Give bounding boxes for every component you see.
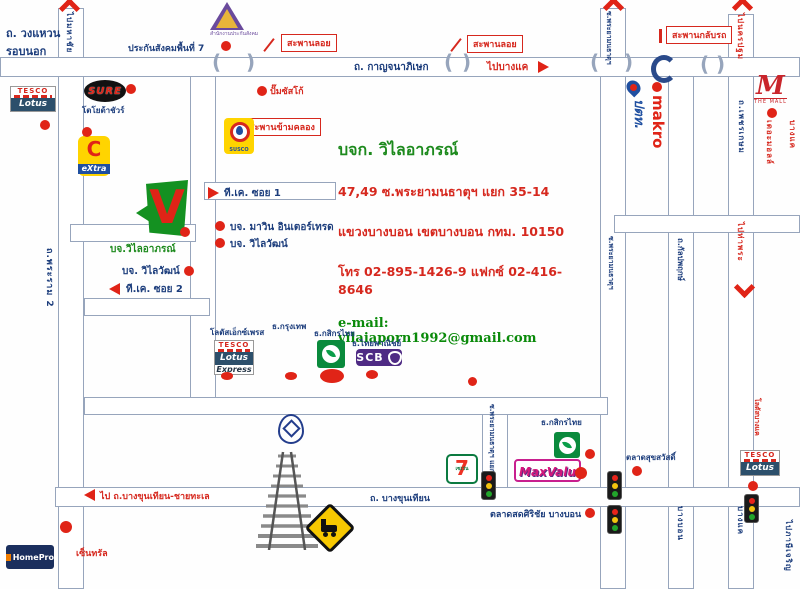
- bangkok-bank-logo: [278, 414, 304, 444]
- the-mall-logo: M THE MALL: [754, 74, 787, 105]
- label-central: เซ็นทรัล: [76, 546, 108, 560]
- label-vilaiwat-left: บจ. วิไลวัฒน์: [122, 264, 180, 279]
- label-bangkok-bank: ธ.กรุงเทพ: [272, 320, 306, 333]
- the-mall-dot: [767, 108, 777, 118]
- susco-logo: SUSCO: [224, 118, 254, 154]
- makro-dot: [652, 82, 662, 92]
- bridge-mark: ): [246, 50, 255, 74]
- label-sapanloy-2: สะพานลอย: [467, 35, 523, 53]
- label-vilaiwat-right: บจ. วิไลวัฒน์: [230, 237, 288, 252]
- vilaiaporn-location-map: ( ) ( ) ( ) ( ) ถ. วงแหวน รอบนอก ไปมหาชั…: [0, 0, 800, 589]
- label-toyota-sure: โตโยต้าชัวร์: [82, 104, 124, 117]
- bigc-extra-logo: C eXtra: [78, 136, 110, 176]
- label-phraya-monthat-mid: ซ.พระยามนธาตุฯ: [606, 236, 617, 290]
- bridge-slash-icon: [450, 38, 461, 52]
- label-bangkhunthian-road: ถ. บางขุนเทียน: [370, 491, 430, 505]
- label-mawin: บจ. มาวิน อินเตอร์เทรด: [230, 220, 334, 235]
- label-susco-pump: ปั๊มซัสโก้: [270, 84, 304, 98]
- train-icon: [315, 513, 345, 543]
- road-tk-soi2: [84, 298, 210, 316]
- tesco-lotus-bangkhae-logo: TESCO Lotus: [740, 450, 780, 476]
- label-talad-suk: ตลาดสุขสวัสดิ์: [626, 451, 676, 464]
- lotus-bangkhae-dot: [748, 481, 758, 491]
- tesco-lotus-logo: TESCO Lotus: [10, 86, 56, 112]
- talad-suk-dot: [632, 466, 642, 476]
- label-lotus-bangkhae: โลตัสบางแค: [752, 398, 763, 436]
- ptt-flame-icon: [624, 78, 644, 98]
- scb-dot: [366, 370, 378, 379]
- mawin-dot: [215, 221, 225, 231]
- label-lotus-express: โลตัสเอ็กซ์เพรส: [210, 326, 264, 339]
- toyota-sure-logo: SURE: [84, 80, 126, 102]
- central-dot: [60, 521, 72, 533]
- company-phone: โทร 02-895-1426-9 แฟกซ์ 02-416-8646: [338, 262, 588, 297]
- arrow-left-icon: [84, 489, 95, 501]
- label-kanlapaphruek: ถ.กัลปพฤกษ์: [674, 238, 687, 281]
- homepro-mark-icon: [6, 554, 11, 561]
- bridge-mark: ): [462, 50, 471, 74]
- homepro-logo: HomePro: [6, 545, 54, 569]
- vilaiwat-left-dot: [184, 266, 194, 276]
- bridge-mark: ): [624, 50, 633, 74]
- bridge-mark: (: [444, 50, 453, 74]
- tesco-lotus-dot: [40, 120, 50, 130]
- maxvalu-logo: MaxValu: [514, 459, 581, 482]
- company-info-block: บจก. วิไลอาภรณ์ 47,49 ซ.พระยามนธาตุฯ แยก…: [338, 138, 588, 346]
- road-right-mid: [614, 215, 800, 233]
- lotus-express-dot: [221, 372, 233, 380]
- sure-dot: [126, 84, 136, 94]
- road-tk-soi: [190, 76, 216, 415]
- bridge-slash-icon: [263, 38, 274, 52]
- arrow-left-icon: [109, 283, 120, 295]
- label-tk-soi2: ที.เค. ซอย 2: [126, 282, 183, 297]
- sso-pyramid-logo: สำนักงานประกันสังคม: [210, 2, 258, 38]
- bridge-mark: ): [716, 52, 725, 76]
- label-kbank-2: ธ.กสิกรไทย: [541, 416, 582, 429]
- bridge-tick-icon: [659, 29, 662, 43]
- label-corner-lower-right: ไปภาษีเจริญ: [782, 520, 795, 572]
- label-kanchanaphisek: ถ. กาญจนาภิเษก: [354, 60, 429, 75]
- label-sapanloy-1: สะพานลอย: [281, 34, 337, 52]
- company-address-2: แขวงบางบอน เขตบางบอน กทม. 10150: [338, 222, 588, 242]
- susco-dot: [257, 86, 267, 96]
- traffic-light-icon: [607, 471, 622, 500]
- label-the-mall-1: เดอะมอลล์: [763, 120, 776, 165]
- railway-track: [256, 450, 318, 550]
- label-tk-soi1: ที.เค. ซอย 1: [224, 186, 281, 201]
- sirichai-dot: [585, 508, 595, 518]
- label-sapan-klabrot: สะพานกลับรถ: [666, 26, 732, 44]
- ptt-logo: ปตท.: [627, 80, 649, 129]
- bridge-mark: (: [212, 50, 221, 74]
- seven-eleven-dot: [468, 377, 477, 386]
- label-sirichai-market: ตลาดสดศิริชัย บางบอน: [490, 507, 581, 521]
- label-kbank-1: ธ.กสิกรไทย: [314, 327, 355, 340]
- label-phetkasem: ถ.เพชรเกษม: [735, 100, 748, 154]
- arrow-right-icon: [208, 187, 219, 199]
- kbank-logo: [554, 432, 580, 458]
- company-name: บจก. วิไลอาภรณ์: [338, 138, 588, 163]
- arrow-right-icon: [538, 61, 549, 73]
- sso7-dot: [221, 41, 231, 51]
- label-bangbon: บางบอน: [674, 506, 687, 541]
- label-rama2: ถ.พระราม 2: [42, 248, 56, 308]
- label-sso7: ประกันสังคมพื้นที่ 7: [128, 41, 204, 55]
- label-to-bangkhae: ไปบางแค: [487, 60, 528, 75]
- road-middle: [84, 397, 608, 415]
- kbank-2-dot: [585, 449, 595, 459]
- label-phraya-monthat-top: ซ.พระยามนธาตุฯ: [604, 11, 615, 65]
- v-company-dot: [180, 227, 190, 237]
- scb-logo: SCB: [356, 349, 402, 366]
- seven-eleven-logo: 7 เซเว่น: [446, 454, 478, 484]
- label-to-thapra: ไปท่าพระ: [734, 222, 747, 262]
- kbank-1-dot: [320, 369, 344, 383]
- label-to-bangkhunthian: ไป ถ.บางขุนเทียน-ชายทะเล: [100, 489, 210, 503]
- lotus-express-logo: TESCO Lotus Express: [214, 340, 254, 375]
- maxvalu-dot: [575, 467, 587, 479]
- kbank-logo: [317, 340, 345, 368]
- label-to-nakhonpathom: ไปนครปฐม: [734, 13, 747, 60]
- label-sapan-khamkhlong: สะพานข้ามคลอง: [243, 118, 321, 136]
- bigc-extra-dot: [82, 127, 92, 137]
- traffic-light-icon: [744, 494, 759, 523]
- bangkok-bank-dot: [285, 372, 297, 380]
- bridge-mark: (: [590, 50, 599, 74]
- traffic-light-icon: [481, 471, 496, 500]
- label-the-mall-2: บางแค: [786, 120, 799, 149]
- sso-logo-caption: สำนักงานประกันสังคม: [210, 30, 258, 38]
- bridge-mark: (: [700, 52, 709, 76]
- makro-logo: makro: [649, 95, 667, 148]
- uturn-arrow-icon: [651, 55, 677, 83]
- company-address-1: 47,49 ซ.พระยามนธาตุฯ แยก 35-14: [338, 182, 588, 202]
- label-v-company: บจ.วิไลอาภรณ์: [110, 242, 176, 257]
- vilaiwat-right-dot: [215, 238, 225, 248]
- traffic-light-icon: [607, 505, 622, 534]
